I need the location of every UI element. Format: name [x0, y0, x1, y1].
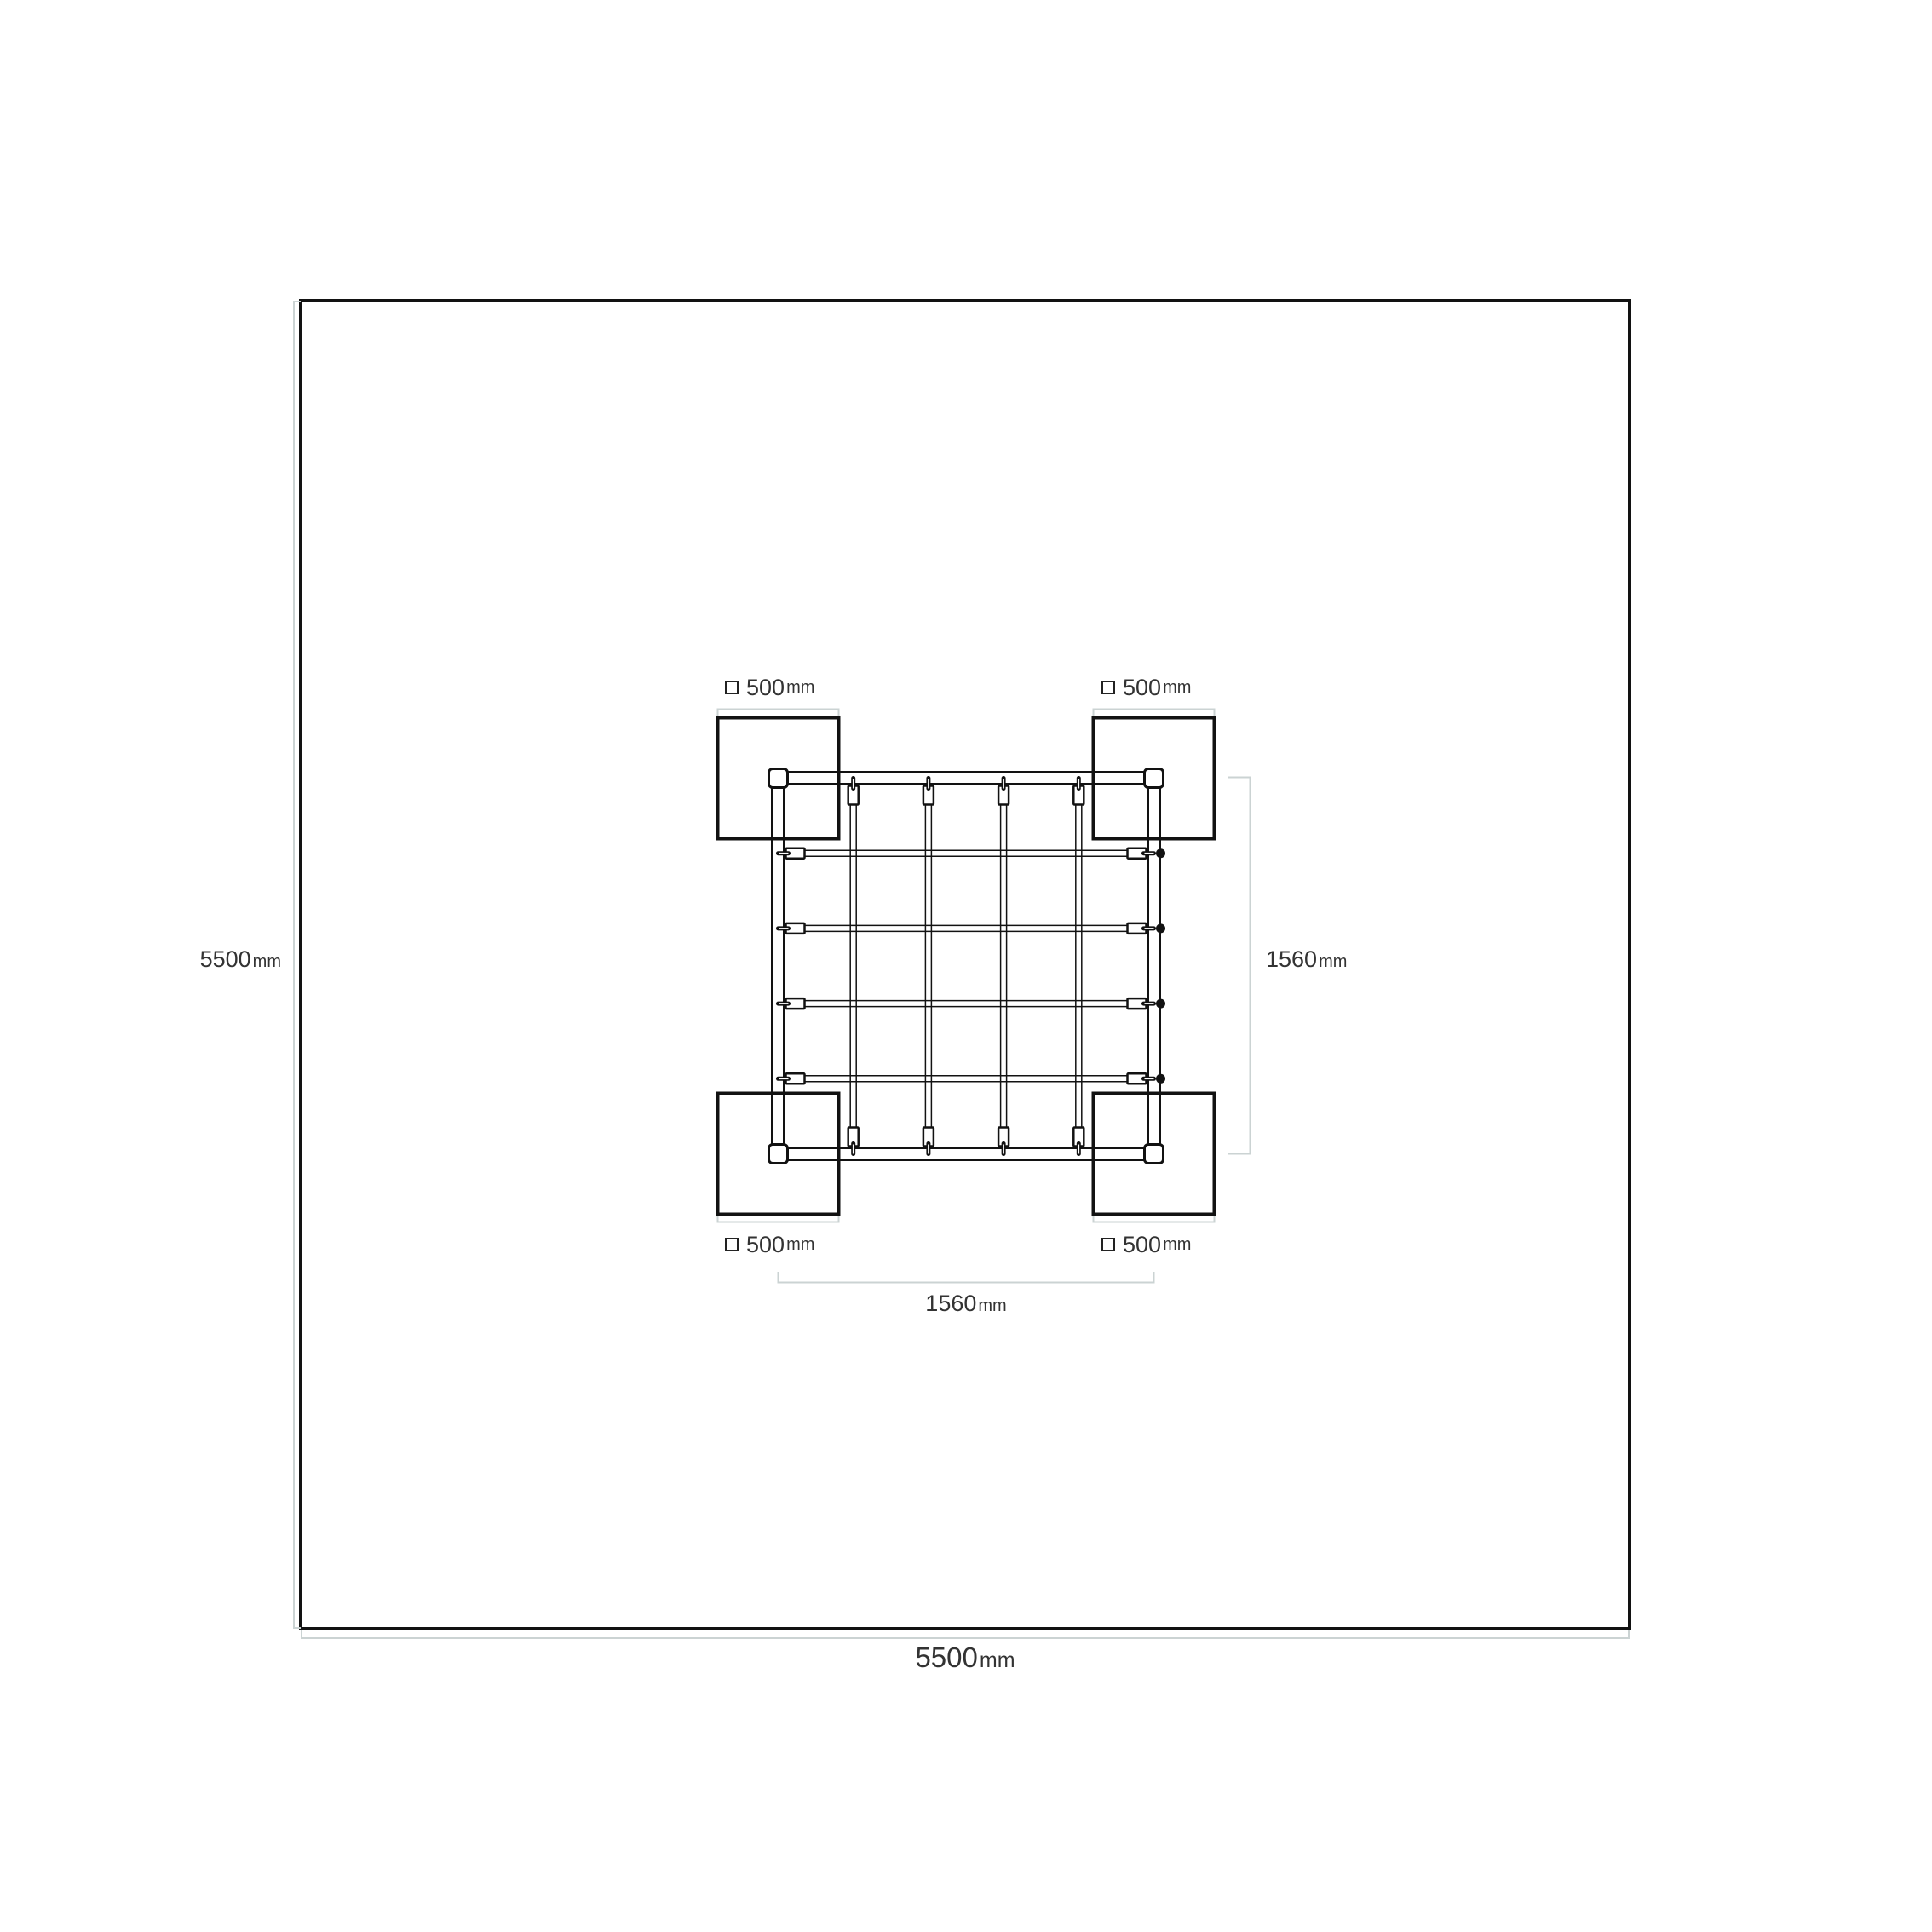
footing-dimension-bracket-bottom — [1094, 1216, 1215, 1222]
dimension-unit: mm — [1163, 678, 1191, 698]
dimension-unit: mm — [1319, 952, 1347, 971]
dimension-unit: mm — [253, 952, 281, 971]
anchor-dot — [1156, 999, 1165, 1009]
hook-pin-slot — [1145, 1003, 1154, 1004]
hook-pin-slot — [1145, 853, 1154, 854]
frame-width-dimension-bracket — [779, 1272, 1154, 1283]
dimension-unit: mm — [978, 1297, 1006, 1315]
hook-pin-slot — [853, 779, 854, 789]
dimension-unit: mm — [786, 1235, 814, 1255]
corner-post — [769, 769, 788, 788]
area-width-dimension-line — [302, 1630, 1629, 1638]
plan-drawing-canvas: 5500mm 5500mm 1560mm 1560mm 500mm 500mm … — [0, 0, 1932, 1932]
frame-height-dimension-bracket — [1228, 778, 1251, 1154]
square-symbol-icon — [725, 1238, 739, 1251]
hook-pin-slot — [779, 928, 789, 929]
hook-pin-slot — [1003, 1145, 1004, 1154]
square-symbol-icon — [1101, 1238, 1115, 1251]
hook-pin-slot — [1078, 1145, 1080, 1154]
dimension-unit: mm — [1163, 1235, 1191, 1255]
footing-size-label-top-right: 500mm — [1101, 676, 1191, 699]
dimension-value: 1560 — [925, 1291, 976, 1316]
hook-pin-slot — [1145, 928, 1154, 929]
dimension-unit: mm — [980, 1648, 1015, 1672]
corner-post — [769, 1145, 788, 1164]
hook-pin-slot — [928, 1145, 929, 1154]
dimension-value: 500 — [1123, 1233, 1161, 1256]
anchor-dot — [1156, 923, 1165, 933]
dimension-value: 1560 — [1266, 946, 1317, 972]
footing-size-label-top-left: 500mm — [725, 676, 814, 699]
dimension-value: 5500 — [915, 1642, 977, 1673]
anchor-dot — [1156, 1074, 1165, 1084]
hook-pin-slot — [928, 779, 929, 789]
frame-width-dimension-label: 1560mm — [855, 1292, 1077, 1316]
dimension-unit: mm — [786, 678, 814, 698]
area-width-dimension-label: 5500mm — [854, 1643, 1076, 1673]
footing-size-label-bottom-left: 500mm — [725, 1233, 814, 1256]
dimension-value: 5500 — [200, 946, 251, 972]
footing-size-label-bottom-right: 500mm — [1101, 1233, 1191, 1256]
hook-pin-slot — [779, 853, 789, 854]
hook-pin-slot — [1078, 779, 1080, 789]
area-boundary-square — [301, 301, 1630, 1629]
footing-dimension-bracket-top — [1094, 710, 1215, 716]
hook-pin-slot — [779, 1078, 789, 1080]
dimension-value: 500 — [746, 1233, 785, 1256]
area-height-dimension-label: 5500mm — [68, 948, 281, 972]
corner-post — [1145, 769, 1164, 788]
footing-dimension-bracket-bottom — [718, 1216, 839, 1222]
corner-post — [1145, 1145, 1164, 1164]
footing-dimension-bracket-top — [718, 710, 839, 716]
hook-pin-slot — [779, 1003, 789, 1004]
hook-pin-slot — [853, 1145, 854, 1154]
frame-height-dimension-label: 1560mm — [1266, 948, 1347, 972]
dimension-value: 500 — [1123, 676, 1161, 699]
hook-pin-slot — [1003, 779, 1004, 789]
square-symbol-icon — [725, 681, 739, 694]
hook-pin-slot — [1145, 1078, 1154, 1080]
anchor-dot — [1156, 848, 1165, 858]
square-symbol-icon — [1101, 681, 1115, 694]
dimension-value: 500 — [746, 676, 785, 699]
